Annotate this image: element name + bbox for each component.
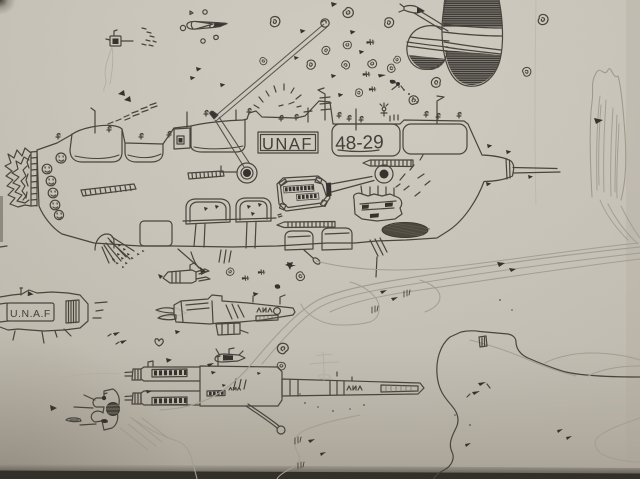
svg-text:U.N.A.F: U.N.A.F	[10, 308, 51, 320]
svg-text:UNAF: UNAF	[262, 136, 313, 154]
